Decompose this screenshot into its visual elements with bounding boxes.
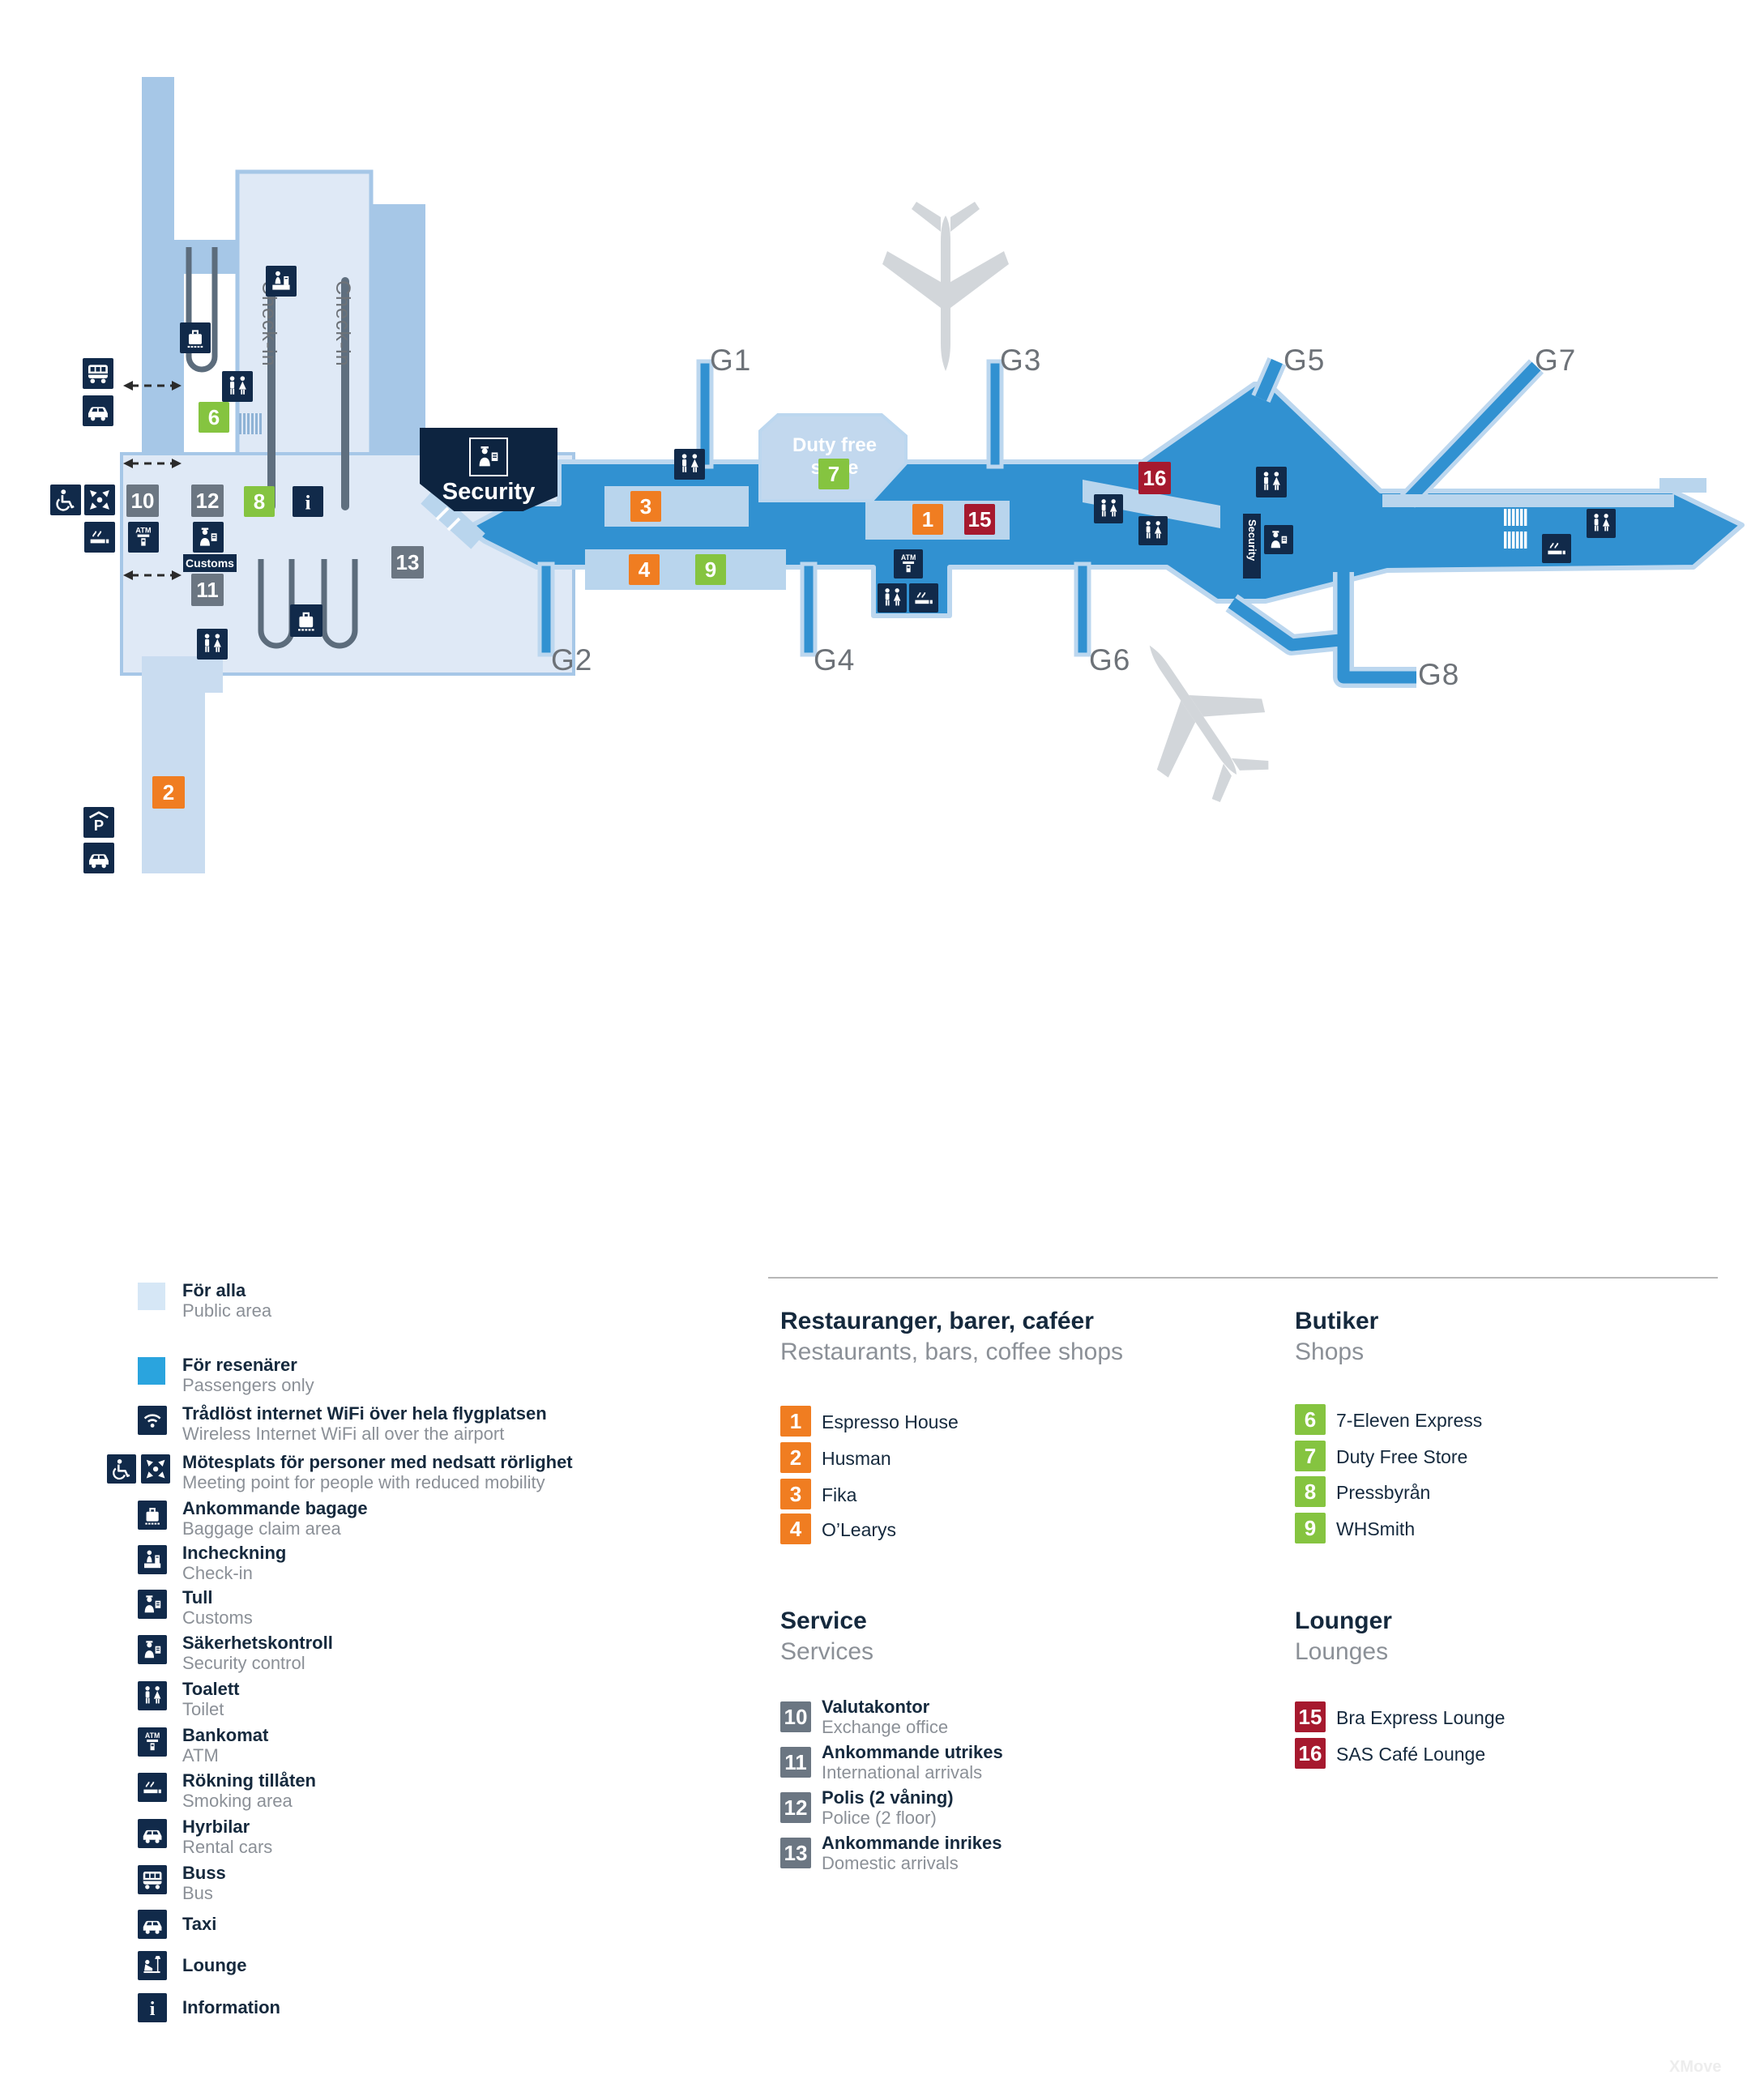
legend-badge-4: 4	[780, 1513, 811, 1544]
map-marker-6: 6	[199, 402, 229, 433]
smoking-label-sv: Rökning tillåten	[182, 1770, 316, 1791]
restaurants-title-en: Restaurants, bars, coffee shops	[780, 1338, 1123, 1366]
baggage-claim-icon	[290, 604, 322, 637]
customs-label-en: Customs	[182, 1607, 253, 1629]
security-icon	[138, 1635, 167, 1664]
customs-label: Customs	[183, 554, 237, 572]
wheelchair-icon	[50, 485, 81, 515]
info-label-sv: Information	[182, 1997, 280, 2018]
bus-icon	[83, 358, 113, 389]
customs-label-sv: Tull	[182, 1587, 212, 1608]
restaurant-2: Husman	[822, 1448, 891, 1470]
toilet-icon-sas-1	[1094, 494, 1123, 523]
security-label-en: Security control	[182, 1653, 305, 1674]
bus-icon	[138, 1865, 167, 1894]
map-marker-10: 10	[126, 485, 159, 517]
map-marker-15: 15	[964, 504, 995, 535]
south-strip-mouth	[142, 656, 223, 693]
lounges-title-en: Lounges	[1295, 1638, 1388, 1666]
airport-terminal-map: G1 G3 G5 G7 G2 G4 G6 G8 Security Duty fr…	[0, 0, 1764, 940]
rental-car-icon	[138, 1819, 167, 1848]
toilet-icon-hall	[222, 371, 253, 402]
service-10-en: Exchange office	[822, 1717, 948, 1738]
atm-icon-west	[128, 522, 159, 553]
gate-stub-g4	[802, 564, 815, 655]
airplane-silhouette-bottom	[1097, 610, 1296, 822]
gate-label-g6: G6	[1089, 643, 1130, 677]
legend-badge-11: 11	[780, 1747, 811, 1778]
strip-terminal-connector	[174, 240, 239, 274]
baggage-icon-upper	[180, 322, 211, 353]
security-checkpoint: Security	[420, 428, 557, 511]
map-marker-8: 8	[244, 486, 275, 517]
atm-label-en: ATM	[182, 1745, 219, 1766]
legend-badge-9: 9	[1295, 1513, 1326, 1543]
restaurants-title-sv: Restauranger, barer, caféer	[780, 1308, 1094, 1335]
shop-8: Pressbyrån	[1336, 1482, 1430, 1504]
toilet-icon	[138, 1681, 167, 1710]
toilet-icon-diamond	[1256, 467, 1287, 497]
gate-label-g3: G3	[1000, 344, 1041, 378]
legend-badge-12: 12	[780, 1792, 811, 1823]
customs-icon	[193, 522, 224, 553]
map-marker-4: 4	[629, 554, 660, 585]
walkway-strip-top	[142, 77, 174, 251]
area-label-en: Public area	[182, 1300, 271, 1321]
baggage-icon	[138, 1501, 167, 1530]
legend-badge-1: 1	[780, 1406, 811, 1437]
area2-label-sv: För resenärer	[182, 1355, 297, 1376]
gate-stub-g6	[1076, 564, 1089, 655]
customs-icon	[138, 1590, 167, 1619]
gate-label-g7: G7	[1535, 344, 1576, 378]
service-11-sv: Ankommande utrikes	[822, 1742, 1003, 1763]
shops-title-sv: Butiker	[1295, 1308, 1378, 1335]
rental-label-sv: Hyrbilar	[182, 1817, 250, 1838]
taxi-icon	[138, 1910, 167, 1939]
wifi-icon	[138, 1406, 167, 1435]
toilet-label-en: Toilet	[182, 1699, 224, 1720]
area-label-sv: För alla	[182, 1280, 246, 1301]
toilet-icon-arrivals	[197, 629, 228, 660]
legend-badge-16: 16	[1295, 1738, 1326, 1769]
bus-label-en: Bus	[182, 1883, 213, 1904]
passengers-only-swatch	[138, 1357, 165, 1385]
toilet-icon-g1	[674, 449, 705, 480]
map-marker-3: 3	[630, 491, 661, 522]
atm-icon	[138, 1727, 167, 1757]
baggage-label-en: Baggage claim area	[182, 1518, 341, 1539]
toilet-label-sv: Toalett	[182, 1679, 239, 1700]
shop-7: Duty Free Store	[1336, 1446, 1467, 1468]
gate-label-g1: G1	[710, 344, 751, 378]
service-11-en: International arrivals	[822, 1762, 982, 1783]
smoking-icon-pier	[909, 583, 938, 613]
wifi-label-sv: Trådlöst internet WiFi över hela flygpla…	[182, 1403, 547, 1424]
lounge-15: Bra Express Lounge	[1336, 1707, 1505, 1729]
restaurant-3: Fika	[822, 1484, 856, 1506]
service-10-sv: Valutakontor	[822, 1697, 929, 1718]
toilet-icon-pier	[878, 583, 907, 613]
smoking-label-en: Smoking area	[182, 1791, 293, 1812]
gate-stub-g7	[1407, 366, 1536, 501]
gate-label-g8: G8	[1418, 658, 1459, 692]
shop-9: WHSmith	[1336, 1518, 1415, 1540]
info-icon	[138, 1993, 167, 2022]
map-marker-7: 7	[818, 459, 849, 489]
map-marker-1: 1	[912, 504, 943, 535]
area2-label-en: Passengers only	[182, 1375, 314, 1396]
airplane-silhouette-top	[882, 202, 1009, 371]
legend-badge-3: 3	[780, 1479, 811, 1509]
smoking-icon	[138, 1773, 167, 1802]
pale-band-right-pier	[1382, 494, 1674, 507]
smoking-icon-east	[1542, 534, 1571, 563]
shop-6: 7-Eleven Express	[1336, 1410, 1482, 1432]
lounge-16: SAS Café Lounge	[1336, 1744, 1485, 1765]
hall-annex	[371, 204, 425, 457]
service-13-sv: Ankommande inrikes	[822, 1833, 1002, 1854]
map-marker-12: 12	[191, 485, 224, 517]
legend-badge-10: 10	[780, 1701, 811, 1732]
security-label: Security	[442, 479, 535, 506]
checkin-icon	[138, 1545, 167, 1574]
parking-garage-icon	[83, 807, 114, 838]
wifi-label-en: Wireless Internet WiFi all over the airp…	[182, 1424, 504, 1445]
legend-divider	[768, 1277, 1718, 1279]
legend-badge-7: 7	[1295, 1441, 1326, 1471]
checkin-icon	[266, 266, 297, 297]
security-label-sv: Säkerhetskontroll	[182, 1633, 333, 1654]
wheelchair-icon	[107, 1454, 136, 1484]
taxi-icon	[83, 395, 113, 426]
lounge-label-sv: Lounge	[182, 1955, 246, 1976]
legend-badge-8: 8	[1295, 1476, 1326, 1507]
shops-title-en: Shops	[1295, 1338, 1364, 1366]
mobility-label-sv: Mötesplats för personer med nedsatt rörl…	[182, 1452, 573, 1473]
gate-stub-g2	[540, 564, 553, 655]
bus-label-sv: Buss	[182, 1863, 226, 1884]
checkin-label-sv: Incheckning	[182, 1543, 286, 1564]
lounge-icon	[138, 1951, 167, 1980]
service-12-sv: Polis (2 våning)	[822, 1787, 954, 1808]
map-marker-13: 13	[391, 546, 424, 579]
restaurant-1: Espresso House	[822, 1411, 959, 1433]
toilet-icon-sas-2	[1138, 516, 1168, 545]
map-marker-9: 9	[695, 554, 726, 585]
legend-badge-6: 6	[1295, 1404, 1326, 1435]
taxi-label-sv: Taxi	[182, 1914, 216, 1935]
pale-tab-right	[1659, 478, 1706, 493]
walkway-strip-lower	[142, 243, 184, 455]
gate-label-g4: G4	[814, 643, 855, 677]
rental-label-en: Rental cars	[182, 1837, 272, 1858]
legend-badge-2: 2	[780, 1442, 811, 1473]
map-marker-2: 2	[152, 776, 185, 809]
legend-badge-13: 13	[780, 1838, 811, 1868]
information-icon	[293, 486, 323, 517]
pale-band-olearys	[585, 549, 786, 590]
checkin-label-2: Check-in	[331, 280, 354, 367]
public-area-swatch	[138, 1283, 165, 1310]
restaurant-4: O’Learys	[822, 1519, 896, 1541]
atm-icon-pier	[894, 549, 923, 579]
pale-band-fika	[604, 486, 749, 527]
legend-badge-15: 15	[1295, 1701, 1326, 1732]
service-13-en: Domestic arrivals	[822, 1853, 959, 1874]
services-title-sv: Service	[780, 1607, 867, 1635]
services-title-en: Services	[780, 1638, 873, 1666]
rental-car-icon-map	[83, 843, 114, 873]
gate-label-g5: G5	[1283, 344, 1325, 378]
map-marker-11: 11	[191, 574, 224, 606]
security-small-label: Security	[1246, 519, 1258, 561]
baggage-label-sv: Ankommande bagage	[182, 1498, 368, 1519]
service-12-en: Police (2 floor)	[822, 1808, 937, 1829]
atm-label-sv: Bankomat	[182, 1725, 268, 1746]
mobility-label-en: Meeting point for people with reduced mo…	[182, 1472, 545, 1493]
lounges-title-sv: Lounger	[1295, 1607, 1392, 1635]
map-marker-16: 16	[1138, 462, 1171, 494]
gate-label-g2: G2	[551, 643, 592, 677]
security-control-icon-pier	[1264, 525, 1293, 554]
toilet-icon-east	[1587, 509, 1616, 538]
meeting-point-icon	[84, 485, 115, 515]
meeting-point-icon	[141, 1454, 170, 1484]
security-control-icon	[469, 438, 508, 476]
smoking-icon-west	[84, 522, 115, 553]
checkin-label-en: Check-in	[182, 1563, 253, 1584]
watermark: XMove	[1669, 2058, 1721, 2077]
